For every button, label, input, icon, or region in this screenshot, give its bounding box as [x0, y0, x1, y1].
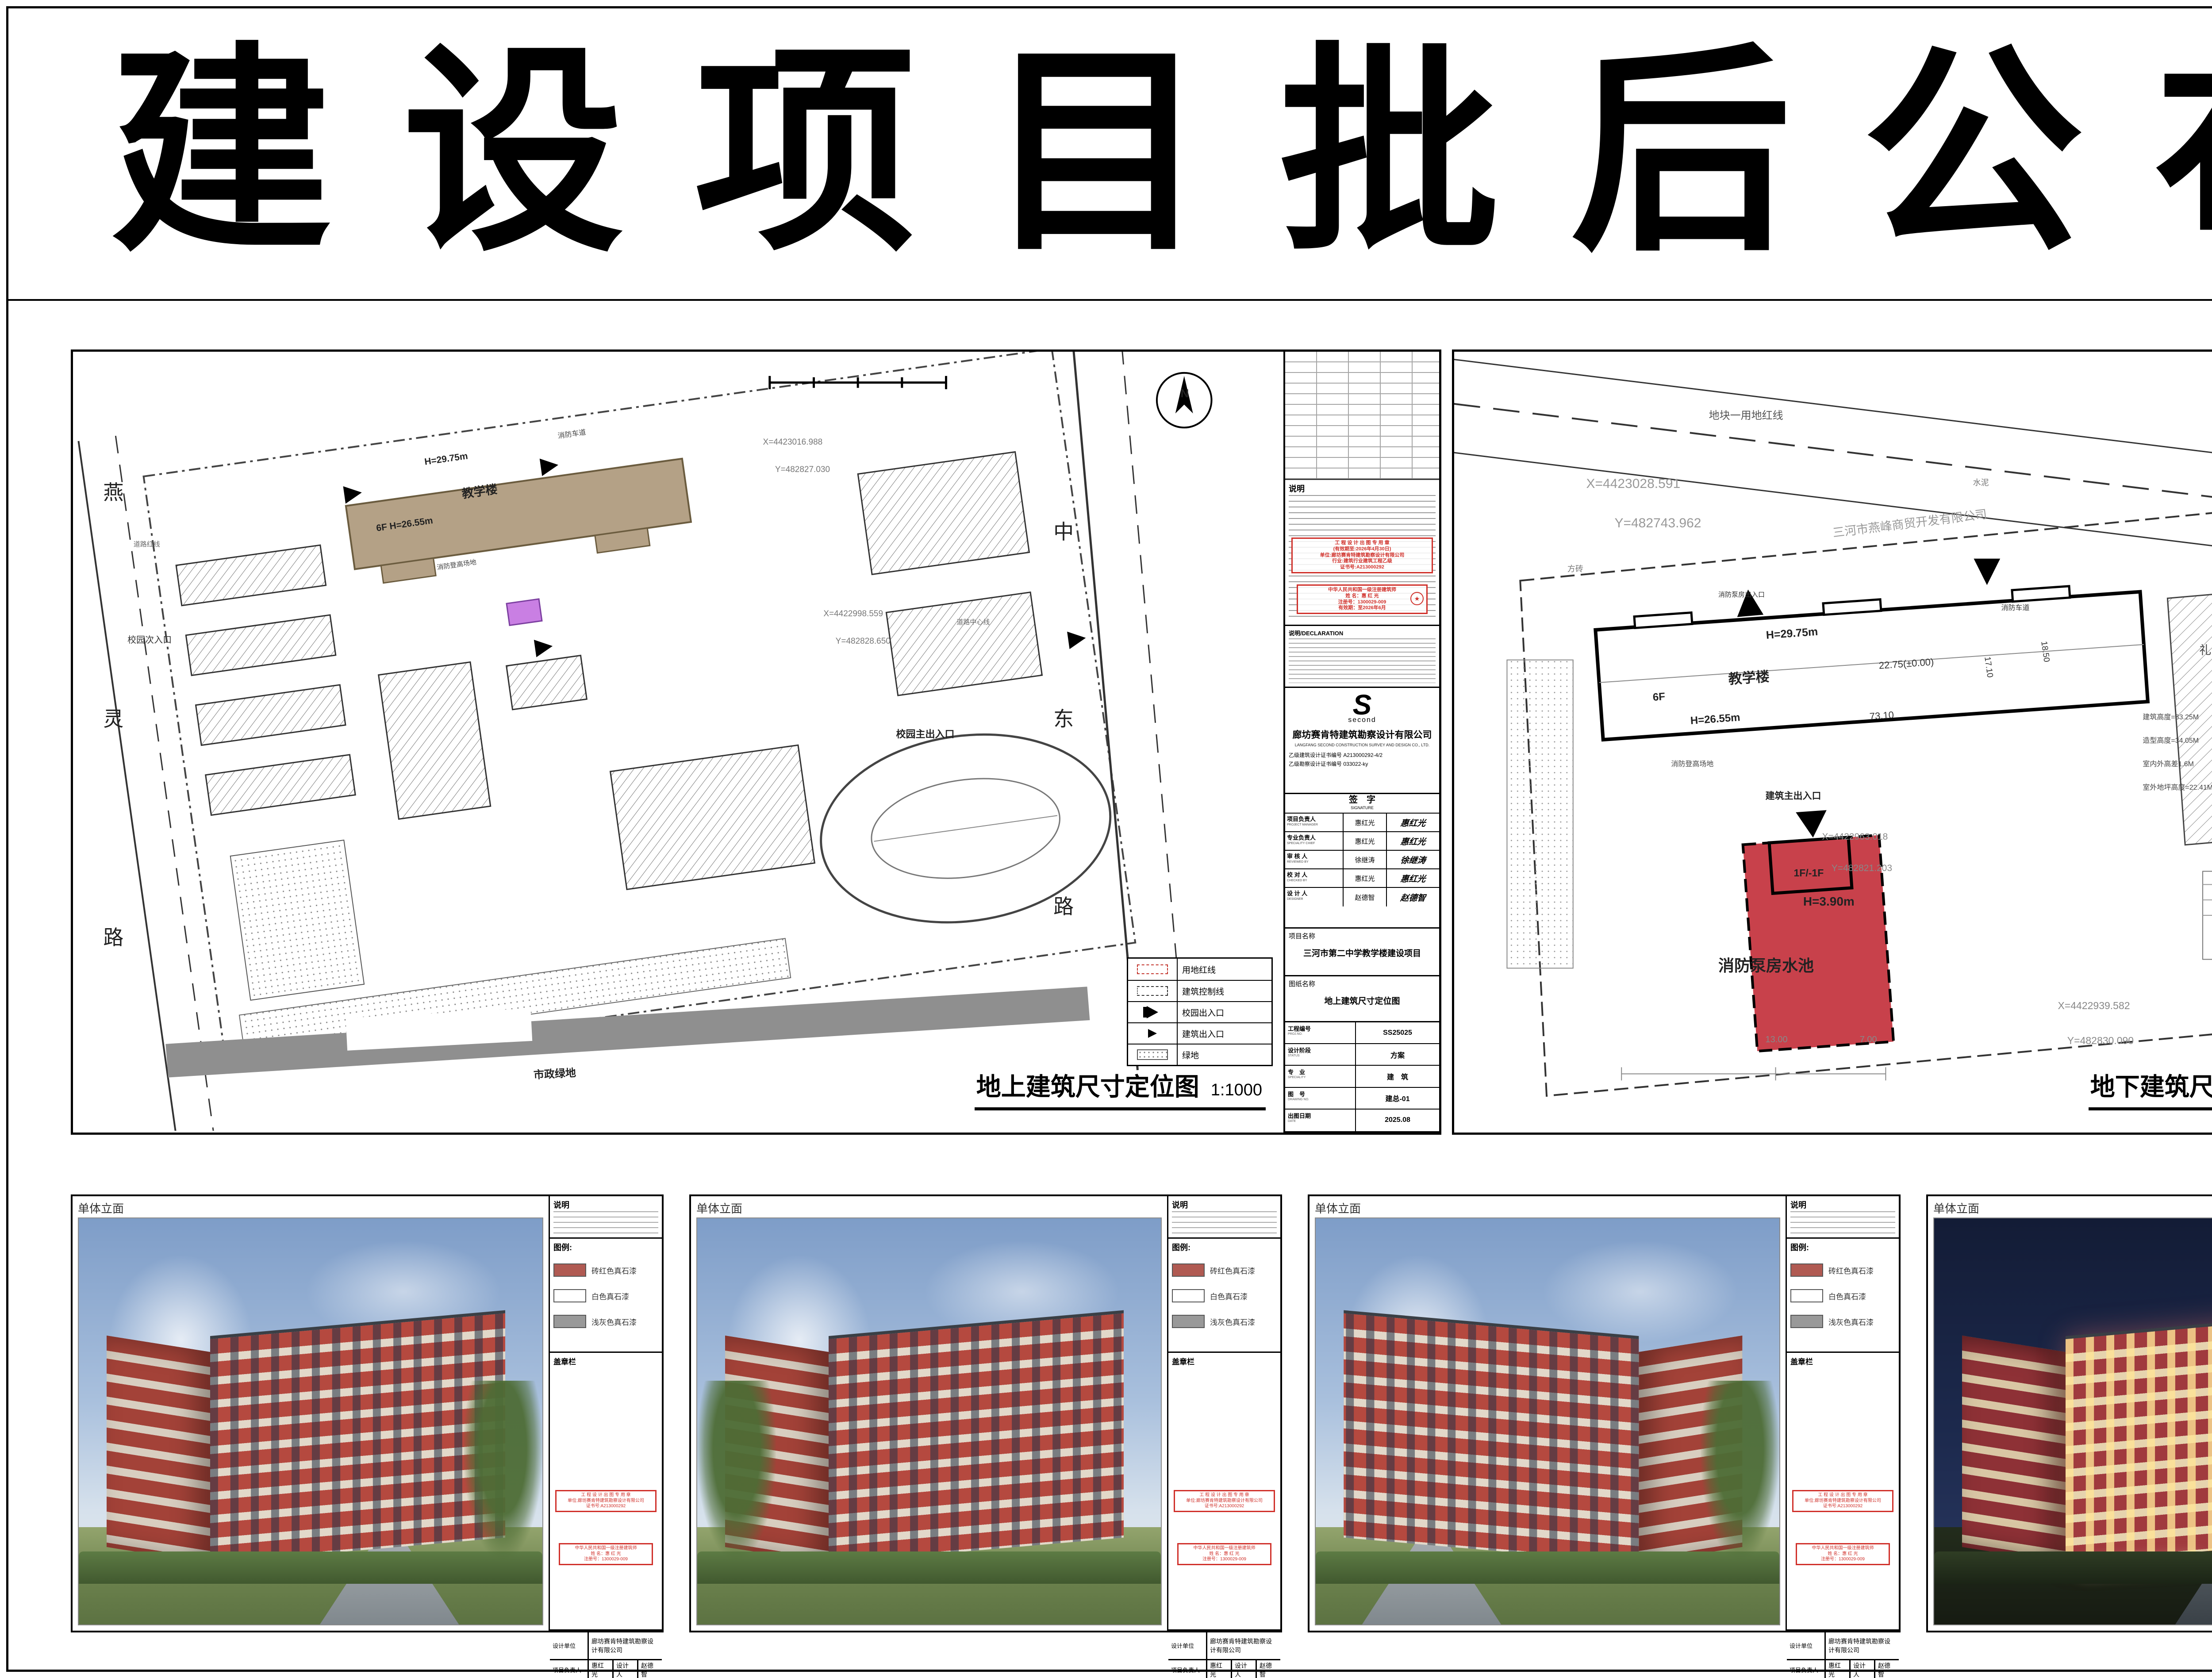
drawing-fields: 工程编号PROJ.NO.SS25025 设计阶段STATUS方案 专 业SPEC… [1285, 1022, 1439, 1133]
map-annotation: X=4423016.988 [763, 438, 823, 447]
map-annotation: 东 [1053, 703, 1074, 732]
map-annotation: 6F [1652, 691, 1666, 704]
signature-row: 设 计 人DESIGNER 赵德智 赵德智 [1285, 888, 1439, 906]
site-plan-above-ground: 燕 灵 路 校园次入口 道路红线 中 东 路 校园主出入口 [71, 349, 1441, 1135]
map-annotation: 教学楼 [1728, 665, 1770, 687]
map-annotation: 校园主出入口 [896, 726, 954, 741]
map-annotation: 消防车道 [2001, 602, 2030, 612]
rendering-panel-3: 单体立面 说明 图例: 砖红色真石漆 [1308, 1194, 1901, 1632]
plan1-symbol-legend: 用地红线 建筑控制线 校园出入口 建筑出入口 绿地 [1127, 957, 1273, 1066]
architect-stamp: 中华人民共和国一级注册建筑师姓 名：惠 红 光注册号：1300029-009 [559, 1543, 653, 1565]
building-rendering-day-3 [1315, 1217, 1780, 1625]
plan1-titleblock: 说明 工 程 设 计 出 图 专 用 章(有效期至:2026年4月30日) 单位… [1283, 352, 1439, 1133]
plan2-map: 地块一用地红线 X=4423028.591 Y=482743.962 三河市燕峰… [1454, 352, 2212, 1133]
map-annotation: 1F/-1F [1794, 867, 1824, 879]
green-area-symbol [1137, 1049, 1168, 1060]
page-title: 建设项目批后公布 [18, 18, 2212, 292]
finish-legend-row: 砖红色真石漆 [1172, 1257, 1277, 1283]
rendering-panel-1: 单体立面 说明 图例: 砖红色真石漆 [71, 1194, 664, 1632]
map-annotation: Y=482828.650 [836, 637, 891, 646]
rendering-titleblock: 说明 图例: 砖红色真石漆 白色真石漆 [1167, 1196, 1280, 1631]
rendering-header: 单体立面 [78, 1200, 124, 1216]
rendering-header: 单体立面 [696, 1200, 742, 1216]
map-annotation: 地块一用地红线 [1709, 407, 1783, 422]
map-annotation: 建筑高度=33.25M [2143, 711, 2199, 722]
map-annotation: 礼 堂 [2199, 641, 2212, 658]
building-rendering-day-2 [696, 1217, 1162, 1625]
map-annotation: 校园次入口 [127, 633, 172, 645]
map-annotation: 7.00 [1860, 1035, 1877, 1045]
plan1-title: 地上建筑尺寸定位图1:1000 [975, 1067, 1266, 1110]
map-annotation: 道路红线 [134, 539, 160, 549]
plan1-drawing [73, 352, 1283, 1131]
company-logo-icon: S [1289, 691, 1436, 719]
rendering-header: 单体立面 [1315, 1200, 1361, 1216]
signature-row: 专业负责人SPECIALITY CHIEF 惠红光 惠红光 [1285, 832, 1439, 851]
campus-entrance-symbol [1147, 1006, 1158, 1018]
map-annotation: X=4423028.591 [1586, 476, 1680, 491]
declaration-block: 说明/DECLARATION [1285, 626, 1439, 688]
map-annotation: 消防泵房出入口 [1718, 590, 1765, 599]
finish-legend-row: 砖红色真石漆 [553, 1257, 658, 1283]
plan1-map: 燕 灵 路 校园次入口 道路红线 中 东 路 校园主出入口 [73, 352, 1283, 1133]
rendering-titleblock: 说明 图例: 砖红色真石漆 白色真石漆 [1786, 1196, 1899, 1631]
sheet-name-cell: 图纸名称 地上建筑尺寸定位图 [1285, 976, 1439, 1022]
project-name-cell: 项目名称 三河市第二中学教学楼建设项目 [1285, 929, 1439, 976]
plan2-title: 地下建筑尺寸定位图1:1000 [2089, 1067, 2212, 1110]
control-line-symbol [1137, 986, 1168, 996]
map-annotation: 市政绿地 [533, 1064, 576, 1082]
map-annotation: Y=482743.962 [1614, 516, 1701, 531]
map-annotation: N [1180, 387, 1189, 400]
building-rendering-day-1 [78, 1217, 543, 1625]
signature-row: 项目负责人PROJECT MANAGER 惠红光 惠红光 [1285, 814, 1439, 832]
map-annotation: 13.00 [1766, 1035, 1788, 1045]
map-annotation: 造型高度=34.05M [2143, 734, 2199, 745]
rendering-header: 单体立面 [1933, 1200, 1979, 1216]
map-annotation: Y=482830.090 [2067, 1035, 2134, 1047]
notice-poster: 建设项目批后公布 此公示根据河北省住建厅(冀建规[2014]36号) 文件，关于… [0, 0, 2212, 1678]
rendering-panel-2: 单体立面 说明 图例: 砖红色真石漆 [689, 1194, 1282, 1632]
design-stamp: 工 程 设 计 出 图 专 用 章单位:廊坊赛肯特建筑勘察设计有限公司证书号:A… [555, 1490, 657, 1512]
map-annotation: 燕 [103, 476, 123, 506]
finish-legend-row: 浅灰色真石漆 [553, 1309, 658, 1334]
map-annotation: 路 [1053, 891, 1074, 920]
tree [464, 1381, 542, 1559]
map-annotation: 道路中心线 [956, 617, 990, 626]
map-annotation: Y=482821.203 [1832, 863, 1892, 874]
red-line-symbol [1137, 964, 1168, 974]
map-annotation: 路 [103, 922, 123, 951]
signature-table: 签 字SIGNATURE 项目负责人PROJECT MANAGER 惠红光 惠红… [1285, 794, 1439, 929]
map-annotation: X=4422939.582 [2058, 1000, 2130, 1012]
rendering-titleblock: 说明 图例: 砖红色真石漆 白色真石漆 [549, 1196, 662, 1631]
title-band-divider [6, 299, 2212, 301]
teaching-building-render [107, 1336, 505, 1563]
finish-legend-row: 白色真石漆 [1790, 1283, 1895, 1309]
finish-legend-row: 浅灰色真石漆 [1172, 1309, 1277, 1334]
map-annotation: X=4422963.018 [1822, 832, 1888, 842]
map-annotation: 73.10 [1869, 709, 1894, 722]
map-annotation: 灵 [103, 703, 123, 732]
map-annotation: Y=482827.030 [775, 465, 830, 475]
map-annotation: 建筑主出入口 [1766, 789, 1821, 802]
map-annotation: 中 [1053, 516, 1074, 545]
finish-legend-row: 浅灰色真石漆 [1790, 1309, 1895, 1334]
finish-legend-row: 砖红色真石漆 [1790, 1257, 1895, 1283]
rendering-panel-4: 单体立面 说明 图例: 砖红色真石漆 [1926, 1194, 2212, 1632]
map-annotation: H=3.90m [1803, 895, 1855, 909]
indicator-table-placeholder [1285, 352, 1439, 480]
map-annotation: 室外地坪高度=22.41M [2143, 781, 2212, 792]
map-annotation: 方砖 [1567, 563, 1583, 574]
finish-legend-row: 白色真石漆 [553, 1283, 658, 1309]
notes-block: 说明 工 程 设 计 出 图 专 用 章(有效期至:2026年4月30日) 单位… [1285, 480, 1439, 626]
map-annotation: 水泥 [1973, 476, 1989, 488]
signature-row: 校 对 人CHECKED BY 惠红光 惠红光 [1285, 869, 1439, 888]
signature-row: 审 核 人REVIEWED BY 徐继涛 徐继涛 [1285, 851, 1439, 869]
map-annotation: 消防泵房水池 [1718, 953, 1814, 976]
map-annotation: X=4422998.559 [823, 609, 883, 619]
finish-legend-row: 白色真石漆 [1172, 1283, 1277, 1309]
map-annotation: 室内外高差1.6M [2143, 758, 2194, 768]
building-rendering-night [1933, 1217, 2212, 1625]
map-annotation: 消防登高场地 [1671, 758, 1713, 768]
building-entrance-symbol [1148, 1029, 1157, 1038]
architect-stamp: 中华人民共和国一级注册建筑师姓 名：惠 红 光 注册号：1300029-009有… [1297, 584, 1428, 614]
site-plan-below-ground: 地块一用地红线 X=4423028.591 Y=482743.962 三河市燕峰… [1452, 349, 2212, 1135]
plan2-drawing [1454, 352, 2212, 1130]
company-block: S second 廊坊赛肯特建筑勘察设计有限公司 LANGFANG SECOND… [1285, 688, 1439, 794]
design-stamp: 工 程 设 计 出 图 专 用 章(有效期至:2026年4月30日) 单位:廊坊… [1291, 538, 1433, 573]
